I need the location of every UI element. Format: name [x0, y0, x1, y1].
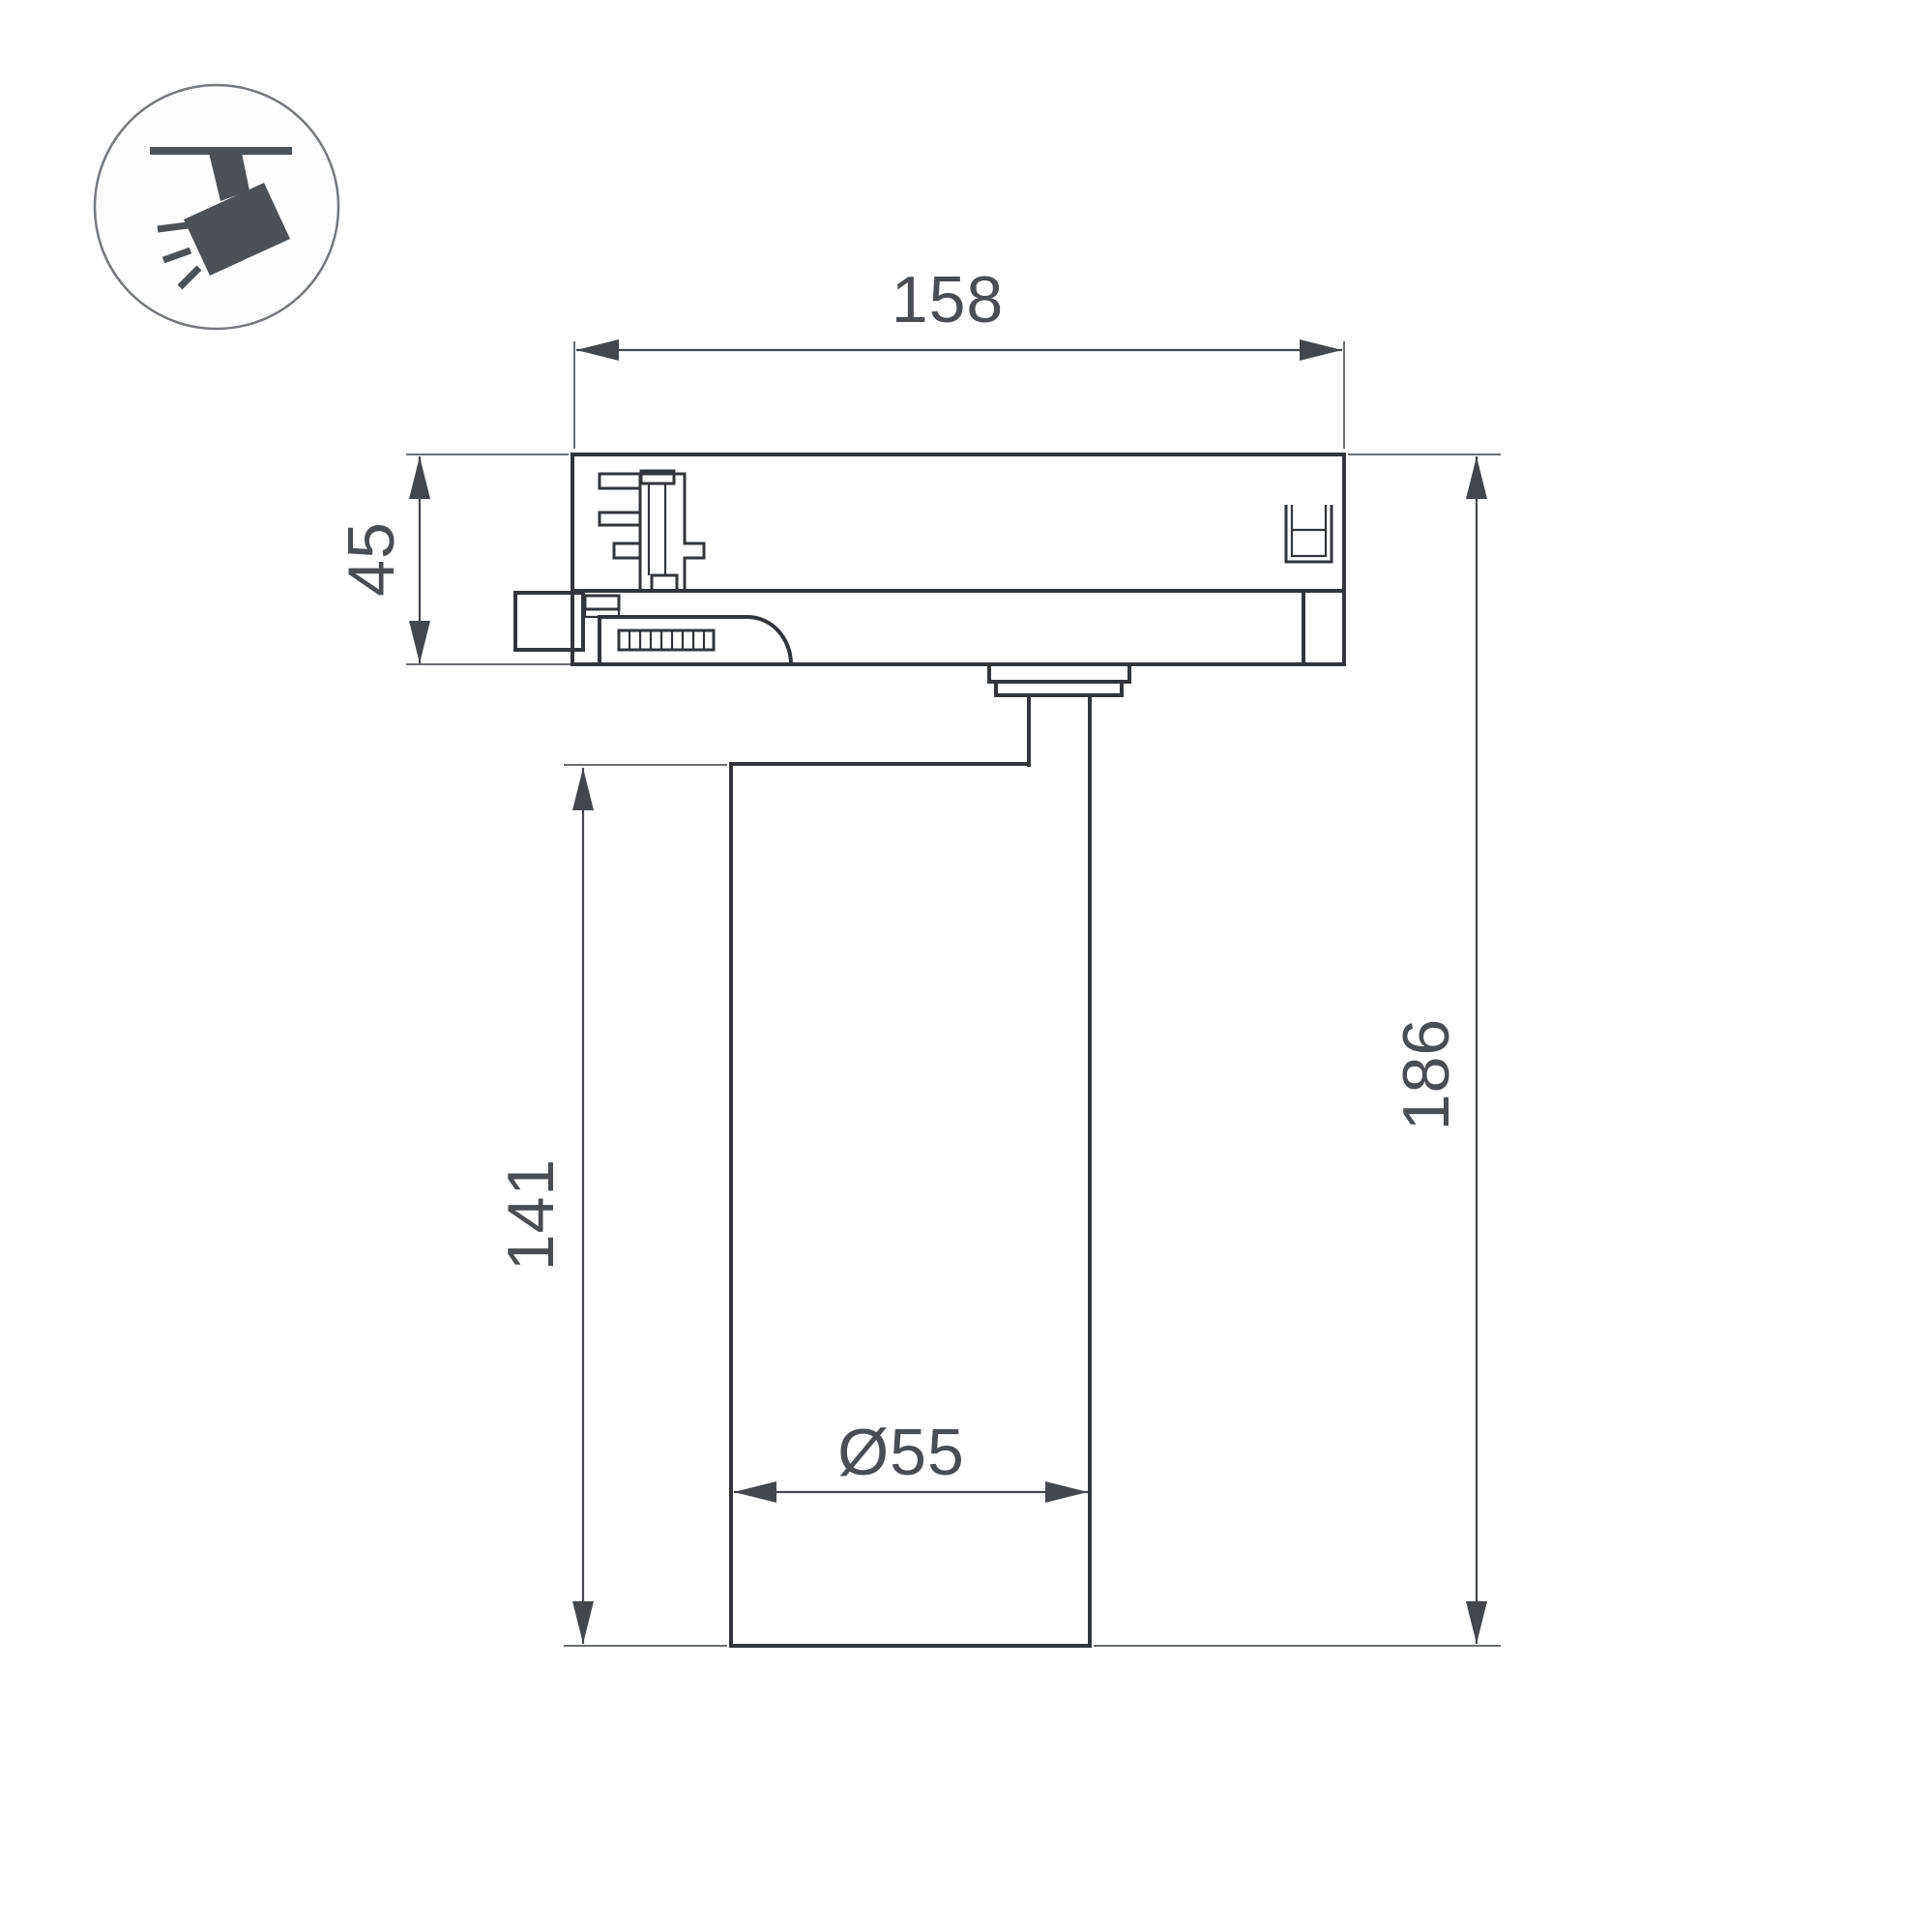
contact-prong-top — [600, 474, 640, 488]
arrowhead-down — [572, 1601, 594, 1644]
dimension-width-158: 158 — [574, 263, 1344, 449]
dimension-label-adapter-height: 45 — [335, 521, 408, 597]
drawing-canvas: 158 45 141 186 Ø55 — [0, 0, 1932, 1932]
latch-plate — [585, 596, 619, 609]
contact-prong-middle — [600, 512, 640, 525]
dimension-body-height-141: 141 — [494, 765, 727, 1646]
arrowhead-up — [572, 768, 594, 810]
track-spotlight-icon — [95, 85, 338, 329]
mount-flange-upper — [989, 664, 1129, 682]
mount-flange-lower — [996, 682, 1122, 695]
dimension-drawing: 158 45 141 186 Ø55 — [0, 0, 1932, 1932]
arrowhead-up — [1466, 456, 1487, 499]
dimension-label-total-height: 186 — [1390, 1018, 1463, 1130]
arrowhead-right — [1300, 339, 1342, 361]
dimension-label-width: 158 — [892, 263, 1004, 337]
dimension-label-diameter: Ø55 — [837, 1416, 965, 1489]
arrowhead-down — [1466, 1601, 1487, 1644]
right-clip — [1286, 505, 1332, 562]
arrowhead-left — [576, 339, 619, 361]
dimension-label-body-height: 141 — [494, 1158, 568, 1271]
lamp-body-cylinder — [731, 764, 1090, 1646]
screw-foot — [652, 575, 677, 591]
mount-stem — [1029, 695, 1090, 767]
contact-assembly — [600, 471, 704, 591]
stem-fill — [1031, 697, 1088, 767]
contact-prong-bottom — [614, 543, 640, 558]
track-adapter — [515, 454, 1344, 695]
dimension-total-height-186: 186 — [1094, 454, 1501, 1646]
dimension-adapter-height-45: 45 — [335, 454, 571, 664]
housing-rounded-body — [600, 617, 791, 664]
arrowhead-up — [409, 456, 430, 499]
mount-flanges — [989, 664, 1129, 695]
arrowhead-down — [409, 621, 430, 663]
lower-housing — [600, 617, 791, 664]
